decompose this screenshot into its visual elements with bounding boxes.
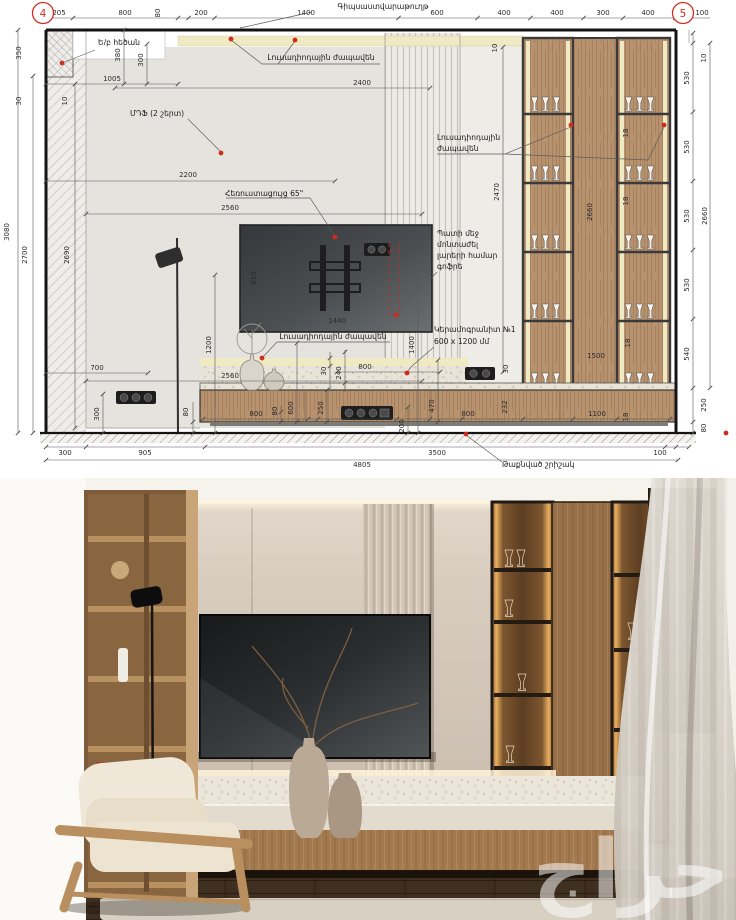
label-led-strip-cabinet: Լուսադիոդային (437, 133, 500, 142)
dim-label: 2470 (493, 183, 501, 201)
cabinet-column (573, 38, 617, 390)
dim-label: 1100 (588, 410, 606, 418)
left-wall-socket-3gang (116, 391, 156, 404)
watermark: حراج (533, 823, 730, 918)
dim-label: 350 (15, 46, 23, 59)
dim-label: 80 (154, 9, 162, 18)
display-cabinets (523, 38, 670, 390)
dim-label: 18 (622, 413, 630, 422)
dim-label: 240 (335, 366, 343, 379)
dim-label: 80 (271, 407, 279, 416)
dim-label: 100 (695, 9, 708, 17)
dim-label: 470 (428, 399, 436, 412)
label-ceramic-granite-2: 600 x 1200 մմ (434, 337, 489, 346)
label-mdf: ՄԴՖ (2 շերտ) (130, 109, 184, 118)
dim-label: 80 (700, 424, 708, 433)
dim-label: 400 (550, 9, 563, 17)
dim-label: 1500 (587, 352, 605, 360)
dim-label: 10 (491, 44, 499, 53)
dim-label: 232 (501, 400, 509, 413)
concrete-beam (46, 30, 73, 77)
dim-label: 600 (287, 401, 295, 414)
screenshot: 205 800 80 200 1400 600 400 400 300 400 … (0, 0, 736, 920)
label-gypsum-board: Գիպսաստվարաթուղթ (338, 2, 429, 11)
dim-label: 1400 (297, 9, 315, 17)
dim-label: 905 (138, 449, 151, 457)
shelf-vase (118, 648, 128, 682)
dim-label: 205 (52, 9, 65, 17)
label-led-strip-ceiling: Լուսադիոդային ժապավեն (267, 53, 374, 62)
dim-label: 800 (461, 410, 474, 418)
dim-label: 100 (653, 449, 666, 457)
dim-label: 800 (118, 9, 131, 17)
dim-label: 530 (683, 209, 691, 222)
dim-label: 10 (700, 54, 708, 63)
dim-label: 18 (622, 129, 630, 138)
dim-label: 2700 (21, 246, 29, 264)
label-conduit-4: գոֆրե (437, 262, 463, 271)
dim-label: 1005 (103, 75, 121, 83)
dim-label: 300 (137, 53, 145, 66)
svg-text:5: 5 (680, 8, 687, 20)
dim-label: 400 (497, 9, 510, 17)
section-marker-4: 4 (33, 3, 54, 24)
dim-label: 80 (182, 408, 190, 417)
dim-label: 250 (700, 398, 708, 411)
photo-render: حراج (0, 478, 736, 920)
tv (240, 225, 432, 332)
floor (40, 433, 696, 443)
technical-drawing: 205 800 80 200 1400 600 400 400 300 400 … (0, 0, 736, 478)
dim-label: 300 (93, 407, 101, 420)
dim-label: 200 (194, 9, 207, 17)
dim-label: 250 (317, 401, 325, 414)
dim-label: 4805 (353, 461, 371, 469)
dim-label: 2660 (586, 203, 594, 221)
dim-label: 30 (15, 97, 23, 106)
dim-label: 1200 (205, 336, 213, 354)
label-concrete-beam: Ե/բ հեծան (98, 38, 140, 47)
dim-label: 2560 (221, 204, 239, 212)
dim-label: 2200 (179, 171, 197, 179)
window-light-wall (0, 478, 86, 920)
dim-label: 2660 (701, 207, 709, 225)
dim-label: 380 (114, 48, 122, 61)
cabinet-right (617, 38, 670, 390)
bench-socket-4gang (341, 406, 393, 420)
label-led-strip-cabinet-2: ժապավեն (437, 144, 479, 153)
dim-label: 30 (502, 365, 510, 374)
label-conduit-3: լարերի համար (437, 251, 498, 260)
terrazzo-backsplash (182, 776, 644, 808)
dim-label: 300 (596, 9, 609, 17)
label-ceramic-granite: Կերամոգրանիտ №1 (434, 325, 516, 334)
dim-label: 600 (430, 9, 443, 17)
label-conduit-2: մոնտաժել (437, 240, 479, 249)
shelf-object (111, 561, 129, 579)
dim-label: 400 (641, 9, 654, 17)
cabinet-left (523, 38, 573, 390)
bench-led-strip (200, 358, 468, 366)
dim-label: 540 (683, 347, 691, 360)
dim-label: 3500 (428, 449, 446, 457)
dim-label: 800 (249, 410, 262, 418)
wall-socket-2gang (465, 367, 495, 380)
label-led-strip-bench: Լուսադիոդային ժապավեն (279, 332, 386, 341)
dim-label: 2690 (63, 246, 71, 264)
dim-label: 3080 (3, 223, 11, 241)
dim-label: 300 (58, 449, 71, 457)
dim-label: 18 (622, 197, 630, 206)
tv-screen (240, 225, 432, 332)
dim-label: 2560 (221, 372, 239, 380)
dim-label: 810 (250, 271, 258, 284)
dim-label: 30 (320, 367, 328, 376)
dim-label: 200 (398, 419, 406, 432)
section-marker-5: 5 (673, 3, 694, 24)
tv-socket (364, 243, 390, 256)
svg-text:4: 4 (40, 8, 47, 20)
large-vase (289, 738, 329, 838)
dim-label: 800 (358, 363, 371, 371)
dim-label: 530 (683, 140, 691, 153)
dim-label: 1440 (328, 317, 346, 325)
dim-label: 2400 (353, 79, 371, 87)
label-tv-65: Հեռուստացույց 65" (225, 189, 303, 198)
dim-label: 10 (61, 97, 69, 106)
label-hidden-plinth: Թաքնված շրիշակ (502, 460, 575, 469)
dim-label: 18 (624, 339, 632, 348)
label-conduit: Պատի մեջ (437, 229, 479, 238)
dim-label: 700 (90, 364, 103, 372)
dim-label: 530 (683, 278, 691, 291)
dim-label: 530 (683, 71, 691, 84)
dim-label: 1400 (408, 336, 416, 354)
